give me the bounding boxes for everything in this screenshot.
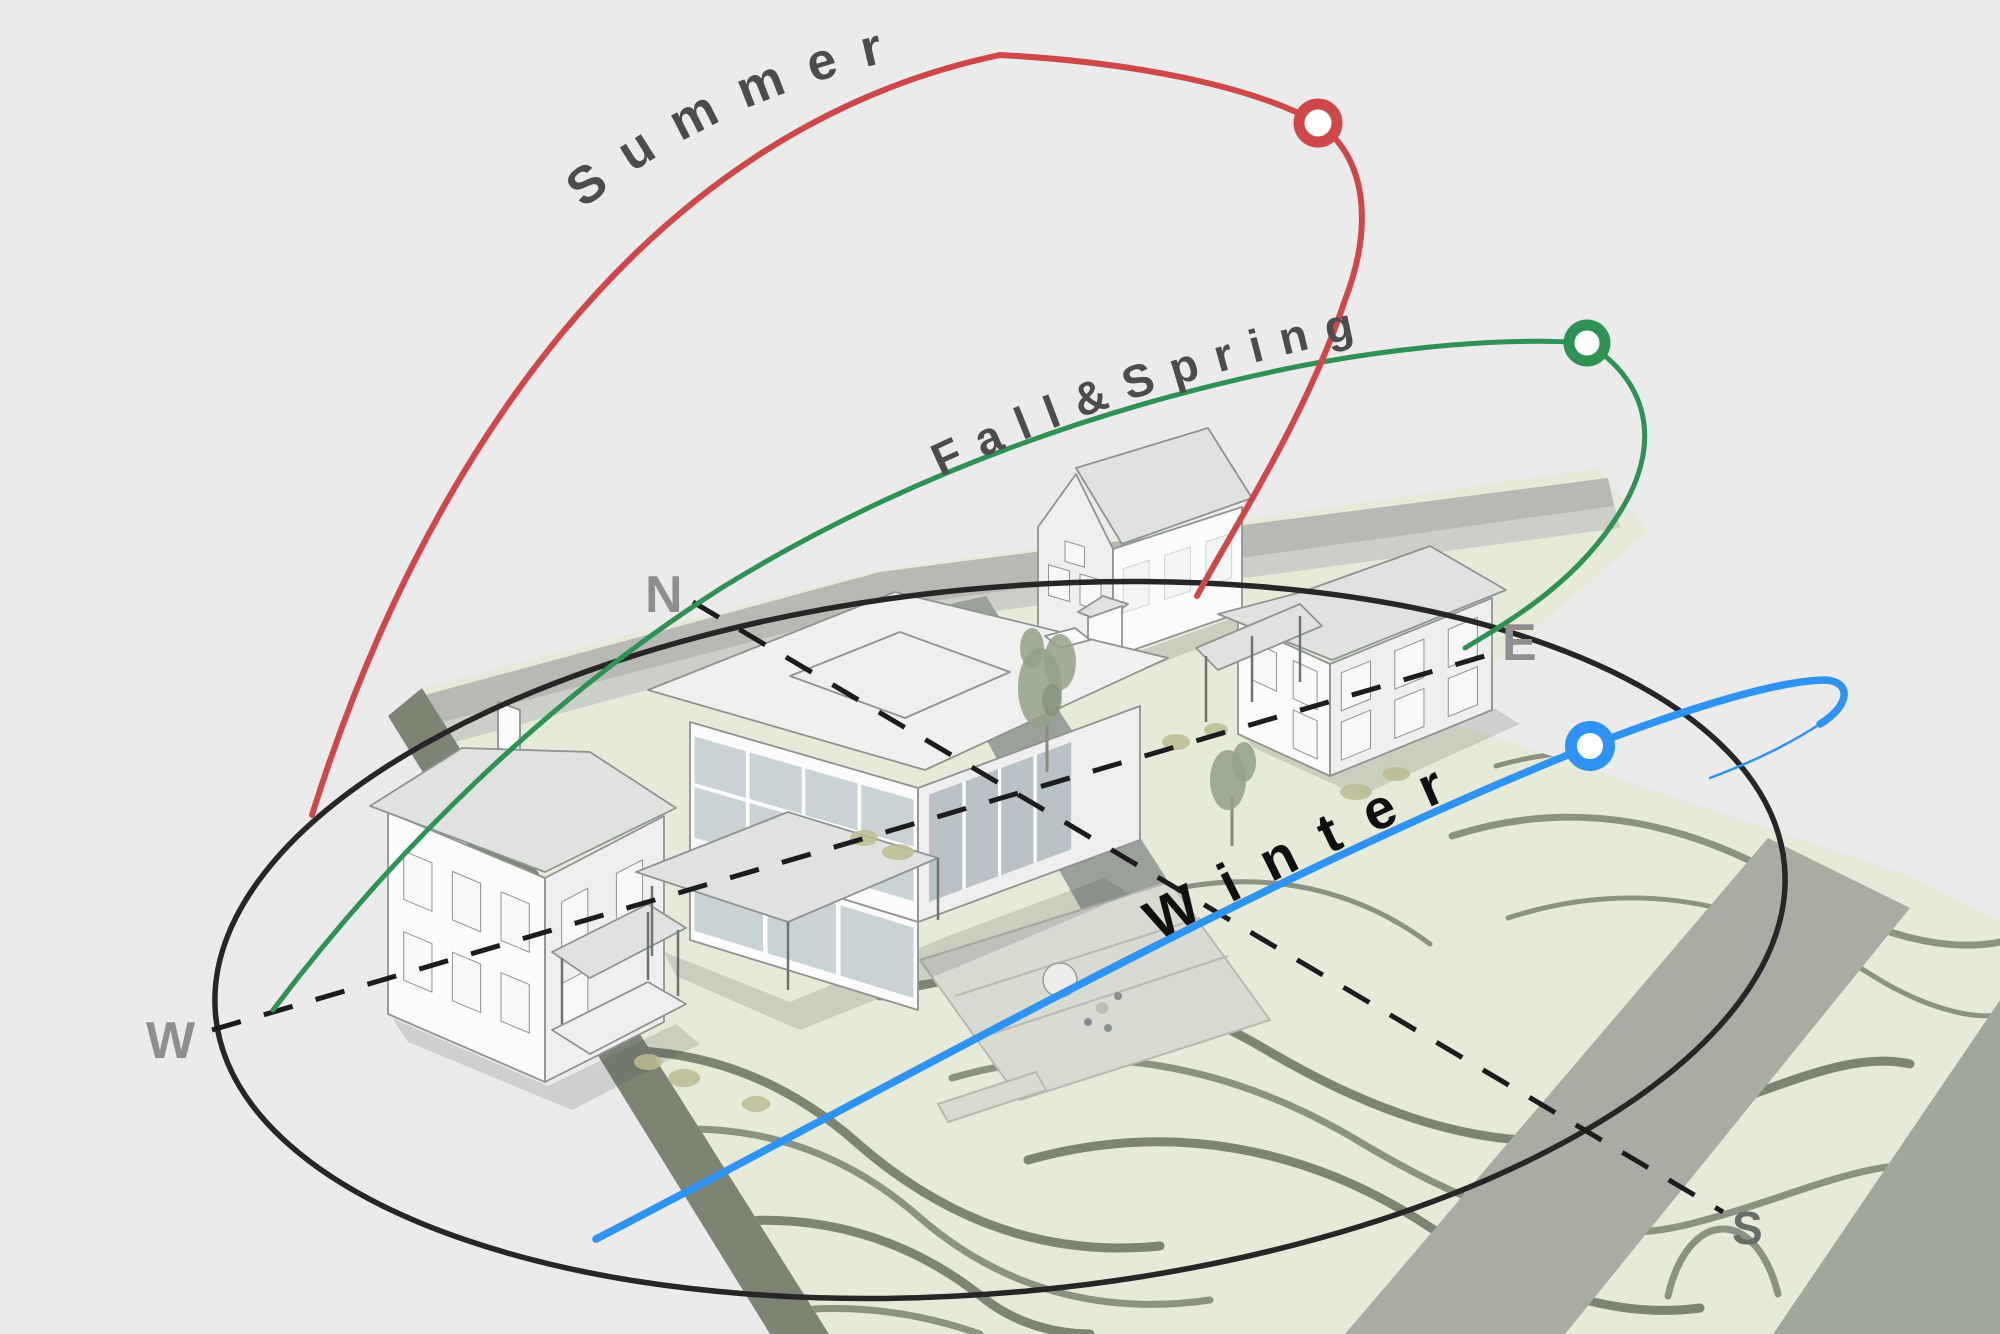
west-label: W bbox=[146, 1012, 196, 1070]
summer-label-text: Summer bbox=[556, 12, 913, 219]
winter-sun-marker bbox=[1571, 727, 1609, 765]
tree bbox=[1042, 684, 1062, 716]
shrub bbox=[634, 1054, 662, 1070]
shrub bbox=[742, 1096, 770, 1112]
south-label: S bbox=[1732, 1202, 1763, 1254]
shrub bbox=[882, 844, 914, 860]
tree bbox=[1044, 634, 1076, 690]
mullion bbox=[962, 781, 965, 889]
mullion bbox=[998, 768, 1001, 876]
patio-chair bbox=[1084, 1018, 1092, 1026]
summer-label: Summer bbox=[556, 12, 913, 219]
mullion bbox=[1033, 755, 1036, 863]
patio-chair bbox=[1114, 992, 1122, 1000]
sun-path-diagram: N E W S Summer Fall&Spring Winter bbox=[0, 0, 2000, 1334]
tree bbox=[1232, 742, 1256, 782]
tree bbox=[1020, 628, 1044, 668]
mullion bbox=[836, 904, 841, 976]
shrub bbox=[668, 1069, 700, 1087]
fallspring-sun-marker bbox=[1569, 325, 1605, 361]
diagram-canvas: N E W S Summer Fall&Spring Winter bbox=[0, 0, 2000, 1334]
summer-sun-marker bbox=[1299, 104, 1337, 142]
patio-chair bbox=[1104, 1024, 1112, 1032]
window bbox=[1165, 547, 1191, 600]
patio-table bbox=[1096, 1002, 1108, 1014]
